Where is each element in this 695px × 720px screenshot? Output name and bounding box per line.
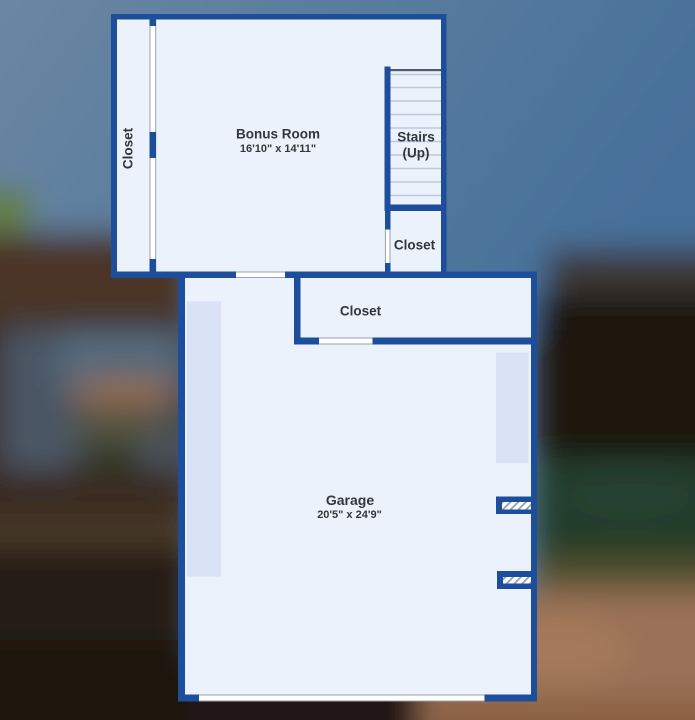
svg-text:Closet: Closet [340, 304, 382, 319]
svg-text:Closet: Closet [121, 127, 136, 169]
svg-text:16'10" x 14'11": 16'10" x 14'11" [240, 143, 316, 155]
svg-text:20'5" x 24'9": 20'5" x 24'9" [317, 509, 382, 521]
svg-text:Bonus Room: Bonus Room [236, 127, 320, 142]
svg-text:Garage: Garage [326, 492, 374, 508]
svg-text:Stairs: Stairs [397, 130, 435, 145]
svg-text:(Up): (Up) [403, 146, 430, 161]
svg-text:Closet: Closet [394, 238, 436, 253]
